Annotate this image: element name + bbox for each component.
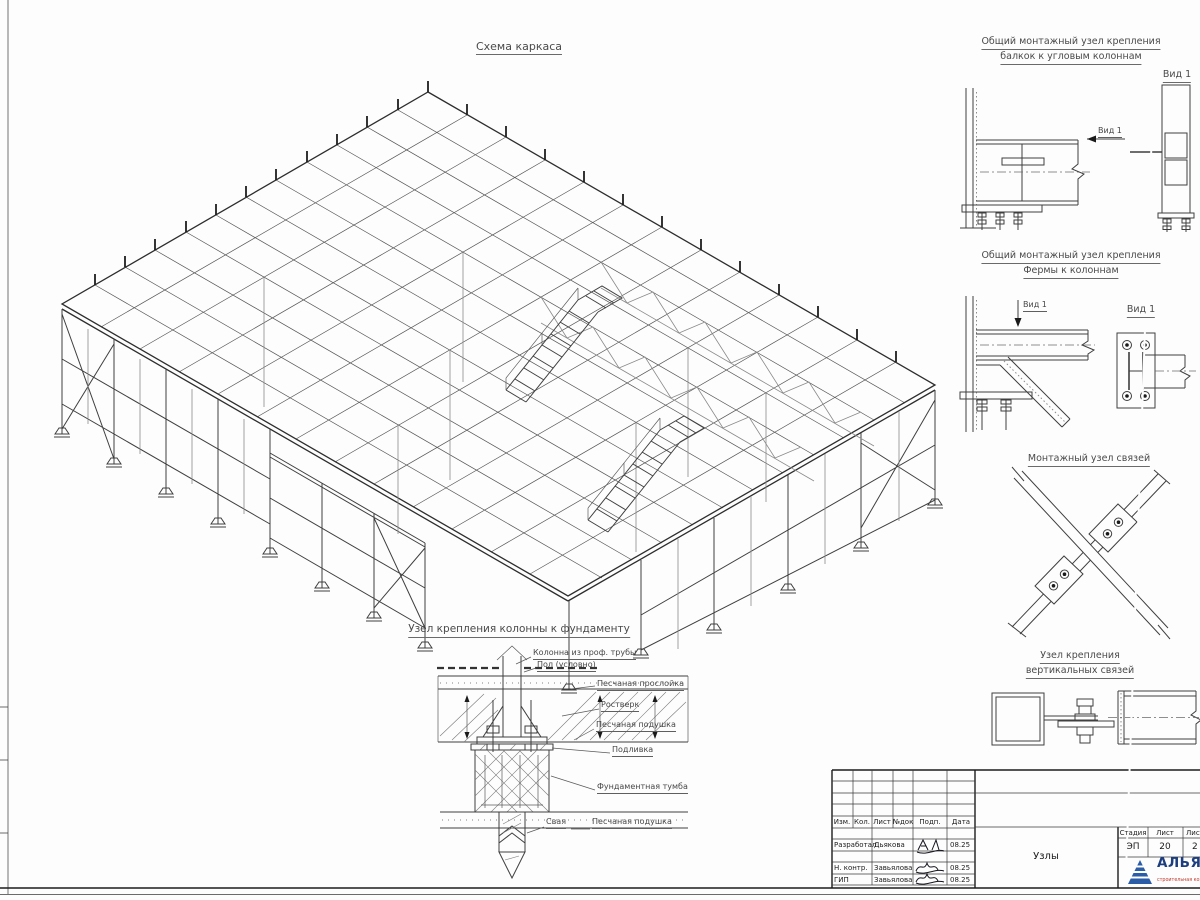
sheet-frame bbox=[0, 0, 1200, 895]
sheet-label: Лист bbox=[1156, 829, 1174, 838]
detail-corner-beam-arrow-label: Вид 1 bbox=[1098, 126, 1122, 138]
detail-braces-title: Монтажный узел связей bbox=[1028, 452, 1150, 467]
sign-row-name: Завьялова bbox=[874, 876, 912, 885]
rev-header-podp: Подп. bbox=[919, 818, 940, 827]
foundation-label-floor: Пол (условно) bbox=[537, 660, 596, 672]
detail-vertical-braces-title: Узел крепления вертикальных связей bbox=[1026, 649, 1134, 679]
rev-header-ndok: №док bbox=[893, 818, 914, 827]
detail-truss-column-title: Общий монтажный узел крепления Фермы к к… bbox=[981, 249, 1160, 279]
foundation-label-sand-bed2: Песчаная подушка bbox=[592, 817, 672, 829]
signature-3 bbox=[916, 874, 944, 884]
doc-name: Узлы bbox=[1033, 852, 1059, 861]
main-frame-drawing bbox=[54, 81, 943, 693]
stage-label: Стадия bbox=[1120, 829, 1147, 838]
foundation-label-grout: Подливка bbox=[612, 745, 653, 757]
detail-vertical-braces-drawing bbox=[992, 691, 1200, 745]
sign-row-name: Завьялова bbox=[874, 864, 912, 873]
detail-truss-column-arrow-label: Вид 1 bbox=[1023, 300, 1047, 312]
detail-truss-column-view-title: Вид 1 bbox=[1127, 303, 1155, 318]
detail-corner-beam-title: Общий монтажный узел крепления балкок к … bbox=[981, 35, 1160, 65]
detail-braces-drawing bbox=[1008, 467, 1170, 639]
logo-pyramid-icon bbox=[1126, 72, 1154, 884]
sign-row-role: ГИП bbox=[834, 876, 849, 885]
sign-row-name: Дьякова bbox=[874, 841, 905, 850]
foundation-label-pile: Свая bbox=[546, 817, 566, 829]
detail-corner-beam-drawing bbox=[960, 85, 1194, 232]
main-title: Схема каркаса bbox=[476, 40, 562, 55]
foundation-label-sand-bed: Песчаная подушка bbox=[596, 720, 676, 732]
sign-row-date: 08.25 bbox=[950, 876, 970, 885]
logo-name: АЛЬЯНС bbox=[1157, 859, 1200, 868]
rev-header-izm: Изм. bbox=[834, 818, 850, 827]
logo-tagline: строительная компания bbox=[1157, 876, 1200, 885]
foundation-label-pedestal: Фундаментная тумба bbox=[597, 782, 688, 794]
rev-header-kol: Кол. bbox=[854, 818, 870, 827]
drawing-linework bbox=[0, 0, 1200, 900]
stairs-drawing bbox=[506, 286, 704, 532]
rev-header-data: Дата bbox=[952, 818, 970, 827]
sheets-value: 2 bbox=[1192, 843, 1198, 852]
foundation-title: Узел крепления колонны к фундаменту bbox=[408, 623, 630, 638]
sign-row-date: 08.25 bbox=[950, 841, 970, 850]
rev-header-list: Лист bbox=[873, 818, 891, 827]
foundation-label-grillage: Ростверк bbox=[601, 700, 639, 712]
sign-row-date: 08.25 bbox=[950, 864, 970, 873]
sign-row-role: Разработал bbox=[834, 841, 876, 850]
drawing-sheet: Схема каркаса Общий монтажный узел крепл… bbox=[0, 0, 1200, 900]
sign-row-role: Н. контр. bbox=[834, 864, 868, 873]
sheets-label: Листов bbox=[1186, 829, 1200, 838]
detail-corner-beam-view-title: Вид 1 bbox=[1163, 68, 1191, 83]
foundation-label-column: Колонна из проф. трубы bbox=[533, 648, 636, 660]
sheet-value: 20 bbox=[1159, 843, 1170, 852]
signature-2 bbox=[916, 863, 944, 873]
stage-value: ЭП bbox=[1126, 843, 1139, 852]
detail-truss-column-drawing bbox=[960, 296, 1196, 432]
foundation-label-sand-layer: Песчаная прослойка bbox=[597, 679, 684, 691]
